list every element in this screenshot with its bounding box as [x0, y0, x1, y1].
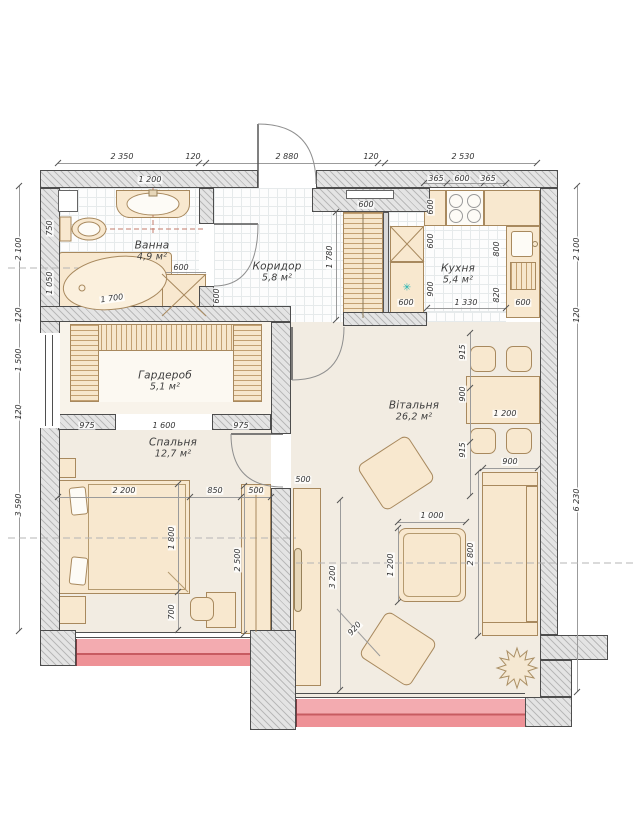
dim-label: 365: [427, 175, 444, 183]
bedroom-closet: [241, 484, 271, 634]
room-area: 5,4 м²: [441, 275, 475, 286]
dim-line-1330: [427, 308, 506, 309]
tv: [294, 548, 302, 612]
dim-label: 2 530: [451, 153, 476, 161]
dim-label: 1 200: [138, 176, 163, 184]
shaft-box: [58, 190, 78, 212]
sofa-armrest-top: [482, 472, 538, 486]
dim-label: 3 200: [329, 565, 337, 590]
dim-label: 2 800: [467, 542, 475, 567]
washbasin-cabinet: [116, 190, 190, 218]
dim-label: 600: [172, 264, 189, 272]
dim-label: 1 050: [46, 271, 54, 296]
room-name: Спальня: [149, 437, 197, 449]
room-label-bathroom: Ванна 4,9 м²: [135, 240, 170, 263]
washer-icon: ✳: [403, 283, 411, 294]
wall-bath-wardrobe: [40, 306, 291, 322]
dim-label: 800: [493, 240, 501, 257]
dim-label: 900: [427, 280, 435, 297]
dim-label: 750: [46, 219, 54, 236]
room-name: Коридор: [252, 261, 301, 273]
sofa-back: [526, 486, 538, 622]
dim-label: 2 350: [110, 153, 135, 161]
dim-line-top: [58, 163, 537, 164]
dining-chair: [470, 428, 496, 454]
living-window: [296, 693, 525, 694]
dim-label: 1 200: [387, 553, 395, 578]
wall-right-step1: [540, 635, 608, 660]
nightstand: [58, 458, 76, 478]
dim-line-sofa-w: [483, 468, 538, 469]
dim-label: 600: [357, 201, 374, 209]
wall-closet-kitchen: [383, 212, 389, 320]
dim-label: 2 500: [234, 548, 242, 573]
stove: [446, 190, 484, 226]
bedroom-balcony: [76, 639, 252, 666]
dim-label: 1 000: [420, 512, 445, 520]
dim-label: 600: [397, 299, 414, 307]
room-label-wardrobe: Гардероб 5,1 м²: [138, 370, 192, 393]
living-balcony: [296, 699, 527, 727]
dish-dryer: [510, 262, 536, 290]
room-area: 5,1 м²: [138, 382, 192, 393]
dim-label: 6 230: [573, 488, 581, 513]
fridge: [390, 226, 424, 262]
wall-right-step2: [540, 660, 572, 697]
dim-line-1200: [398, 528, 399, 602]
dim-label: 500: [294, 476, 311, 484]
dim-label: 975: [232, 422, 249, 430]
dim-label: 2 100: [15, 237, 23, 262]
kitchen-counter-right: [484, 190, 540, 226]
wall-wardrobe-right: [271, 322, 291, 434]
dim-label: 120: [184, 153, 201, 161]
dim-label: 915: [459, 441, 467, 458]
wall-bottom-left-block: [40, 630, 76, 666]
room-name: Гардероб: [138, 370, 192, 382]
wall-kitchen-bottom: [343, 312, 427, 326]
room-area: 12,7 м²: [149, 449, 197, 460]
wardrobe-rail-right: [233, 324, 262, 402]
dim-label: 3 590: [15, 493, 23, 518]
desk-chair: [190, 597, 214, 621]
dim-label: 1 600: [152, 422, 177, 430]
dim-label: 120: [573, 306, 581, 323]
dim-label: 2 200: [112, 487, 137, 495]
dim-line-dining-col: [470, 333, 471, 496]
wardrobe-rail-left: [70, 324, 99, 402]
room-label-living: Вітальня 26,2 м²: [389, 400, 439, 423]
bedroom-window: [76, 632, 250, 633]
dim-label: 1 200: [493, 410, 518, 418]
room-name: Кухня: [441, 263, 475, 275]
dim-line-2800: [478, 472, 479, 636]
dim-label: 600: [427, 198, 435, 215]
dim-label: 1 780: [326, 245, 334, 270]
dim-label: 1 500: [15, 348, 23, 373]
dim-line-bed-h: [58, 497, 271, 498]
coffee-table-inner: [403, 533, 461, 597]
left-window-line2: [52, 335, 53, 426]
room-label-corridor: Коридор 5,8 м²: [252, 261, 301, 284]
dim-label: 900: [501, 458, 518, 466]
room-area: 4,9 м²: [135, 252, 170, 263]
left-window-line1: [45, 335, 46, 426]
dim-line-1000: [398, 522, 466, 523]
entry-shelf: [346, 190, 394, 199]
dim-line-bed-v: [178, 484, 179, 630]
floor-plan: 2 350 120 2 880 120 2 530 2 100 120 1 50…: [0, 0, 640, 822]
room-area: 26,2 м²: [389, 412, 439, 423]
dim-line-right: [577, 186, 578, 692]
dim-label: 915: [459, 343, 467, 360]
dim-line-closet-corr: [336, 212, 337, 320]
room-name: Ванна: [135, 240, 170, 252]
dim-label: 600: [427, 232, 435, 249]
sofa-armrest-bottom: [482, 622, 538, 636]
pillow: [69, 556, 89, 586]
dim-label: 120: [15, 306, 23, 323]
dim-label: 600: [453, 175, 470, 183]
dim-label: 1 800: [168, 526, 176, 551]
dim-line-3200: [340, 500, 341, 690]
dim-label: 500: [247, 487, 264, 495]
wall-bath-right-upper: [199, 188, 214, 224]
kitchen-sink: [511, 231, 533, 257]
dim-label: 600: [514, 299, 531, 307]
dim-line-closet-v: [244, 486, 245, 634]
dining-chair: [506, 346, 532, 372]
dim-label: 975: [78, 422, 95, 430]
room-label-kitchen: Кухня 5,4 м²: [441, 263, 475, 286]
dim-label: 365: [479, 175, 496, 183]
pillow: [69, 486, 89, 516]
dim-label: 850: [206, 487, 223, 495]
dim-label: 2 100: [573, 237, 581, 262]
dining-chair: [470, 346, 496, 372]
left-window: [40, 333, 60, 428]
wall-between-balconies: [250, 630, 296, 730]
dim-label: 120: [15, 403, 23, 420]
dim-label: 900: [459, 385, 467, 402]
dim-label: 700: [168, 603, 176, 620]
dining-chair: [506, 428, 532, 454]
room-name: Вітальня: [389, 400, 439, 412]
dim-label: 120: [362, 153, 379, 161]
dim-label: 2 880: [275, 153, 300, 161]
hall-closet: [343, 212, 383, 320]
room-area: 5,8 м²: [252, 273, 301, 284]
dim-label: 1 330: [454, 299, 479, 307]
dim-label: 600: [213, 287, 221, 304]
wall-bottom-right-block: [525, 697, 572, 727]
bedroom-window-line2: [76, 637, 250, 638]
dim-label: 820: [493, 286, 501, 303]
room-label-bedroom: Спальня 12,7 м²: [149, 437, 197, 460]
living-window-line2: [296, 697, 525, 698]
nightstand: [58, 596, 86, 624]
wall-right: [540, 188, 558, 635]
